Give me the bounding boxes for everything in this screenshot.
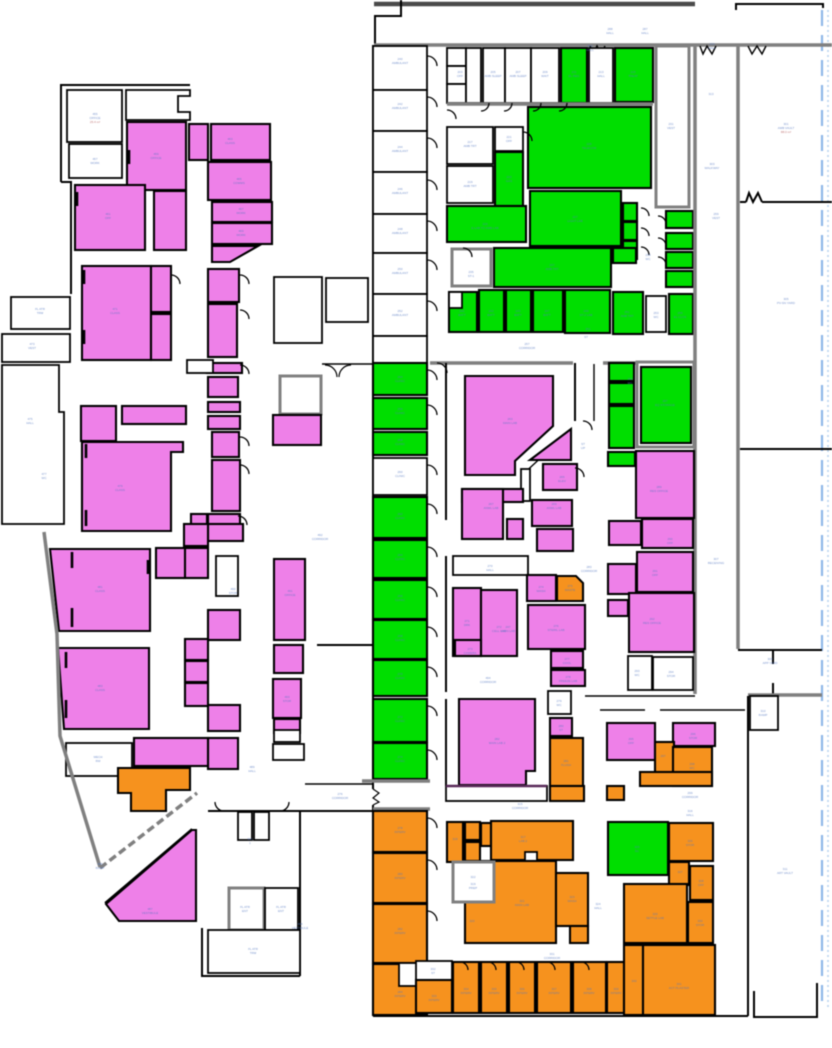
svg-text:318: 318 — [452, 837, 457, 841]
svg-text:322: 322 — [470, 875, 475, 879]
svg-text:297: 297 — [660, 754, 665, 758]
svg-text:461OFF: 461OFF — [105, 212, 111, 220]
svg-text:223GAS: 223GAS — [506, 175, 512, 183]
svg-text:298WC: 298WC — [689, 762, 695, 770]
svg-text:290OFF: 290OFF — [667, 537, 673, 545]
svg-text:221OFF: 221OFF — [506, 135, 512, 143]
svg-text:261: 261 — [585, 327, 590, 331]
svg-text:271DRK: 271DRK — [464, 619, 470, 627]
svg-text:239WC: 239WC — [645, 253, 651, 261]
svg-text:320: 320 — [469, 919, 474, 923]
svg-text:340: 340 — [631, 979, 636, 983]
svg-text:313: 313 — [708, 92, 713, 96]
svg-text:328OFF: 328OFF — [698, 879, 704, 887]
svg-text:STUP: STUP — [581, 442, 585, 450]
svg-text:203OFF: 203OFF — [457, 70, 463, 78]
svg-text:327: 327 — [677, 870, 682, 874]
svg-text:ST: ST — [584, 335, 588, 339]
svg-text:253WC: 253WC — [653, 311, 659, 319]
svg-text:235ST-1: 235ST-1 — [468, 270, 475, 278]
svg-text:279WC: 279WC — [556, 699, 562, 707]
svg-text:291OFF: 291OFF — [652, 569, 658, 577]
svg-text:285WC: 285WC — [627, 377, 633, 385]
svg-text:295OFF: 295OFF — [628, 737, 634, 745]
svg-text:477WC: 477WC — [41, 472, 47, 480]
svg-text:293WC: 293WC — [634, 669, 640, 677]
